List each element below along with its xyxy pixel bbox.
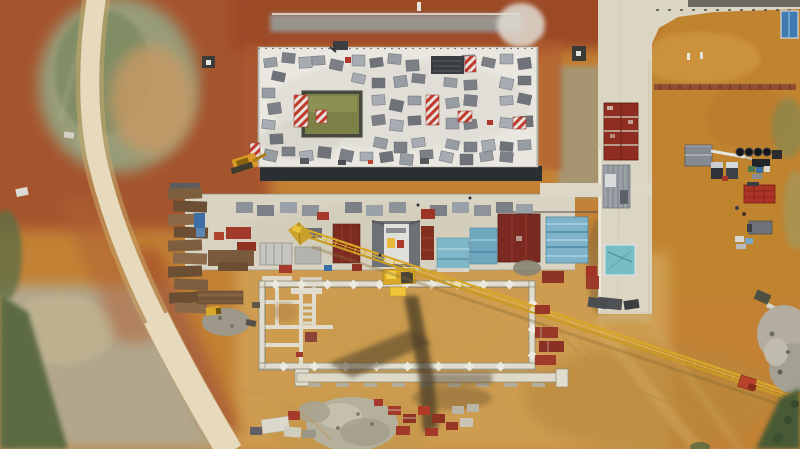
construction-site-scene [0, 0, 800, 449]
aerial-photo [0, 0, 800, 449]
